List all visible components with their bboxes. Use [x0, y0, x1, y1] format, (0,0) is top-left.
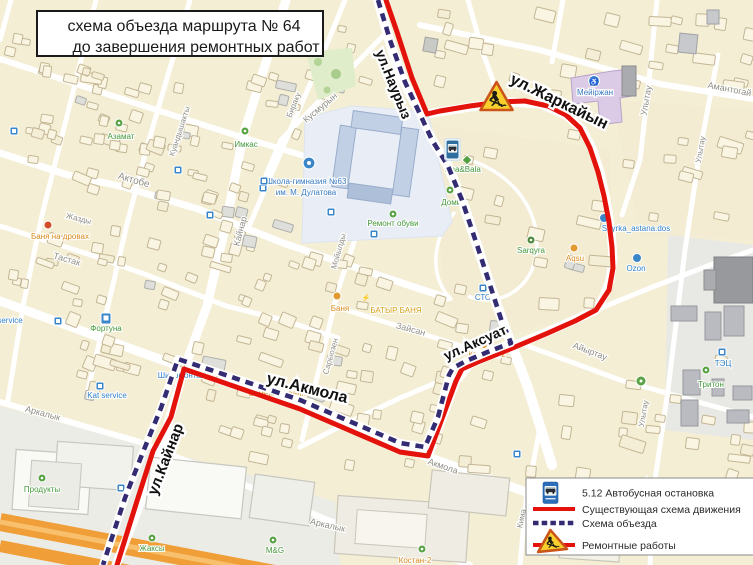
svg-text:ТЭЦ: ТЭЦ: [715, 359, 732, 368]
svg-text:Мейіржан: Мейіржан: [577, 88, 613, 97]
svg-text:Продукты: Продукты: [24, 485, 60, 494]
svg-text:Ремонтные работы: Ремонтные работы: [582, 540, 676, 552]
svg-text:Aqsu: Aqsu: [566, 254, 584, 263]
svg-text:Sarqyra: Sarqyra: [517, 246, 546, 255]
svg-text:Азамат: Азамат: [108, 132, 135, 141]
svg-text:service: service: [0, 316, 23, 325]
svg-text:Схема объезда: Схема объезда: [582, 518, 657, 530]
svg-text:5.12 Автобусная остановка: 5.12 Автобусная остановка: [582, 488, 714, 500]
svg-text:Kat service: Kat service: [87, 391, 127, 400]
svg-text:до завершения ремонтных работ: до завершения ремонтных работ: [72, 39, 320, 56]
svg-text:Тритон: Тритон: [698, 380, 724, 389]
svg-text:Существующая схема движения: Существующая схема движения: [582, 504, 741, 516]
svg-text:Жаксы: Жаксы: [139, 544, 165, 553]
svg-text:Фортуна: Фортуна: [90, 324, 122, 333]
svg-text:Баня: Баня: [331, 304, 349, 313]
svg-text:♿: ♿: [590, 77, 599, 86]
svg-text:схема объезда маршрута № 64: схема объезда маршрута № 64: [67, 18, 300, 35]
svg-text:СТО: СТО: [475, 293, 491, 302]
svg-text:M&G: M&G: [266, 546, 284, 555]
svg-text:Ремонт обуви: Ремонт обуви: [367, 219, 418, 228]
svg-text:Ozon: Ozon: [626, 264, 645, 273]
svg-text:Баня на дровах: Баня на дровах: [31, 232, 89, 241]
svg-text:им. М. Дулатова: им. М. Дулатова: [276, 188, 337, 197]
svg-text:Школа-гимназия №63: Школа-гимназия №63: [266, 177, 347, 186]
svg-text:Имкас: Имкас: [234, 140, 257, 149]
svg-text:БАТЫР БАНЯ: БАТЫР БАНЯ: [370, 306, 422, 315]
svg-text:Костан-2: Костан-2: [399, 556, 432, 565]
svg-text:⚡: ⚡: [362, 293, 371, 302]
